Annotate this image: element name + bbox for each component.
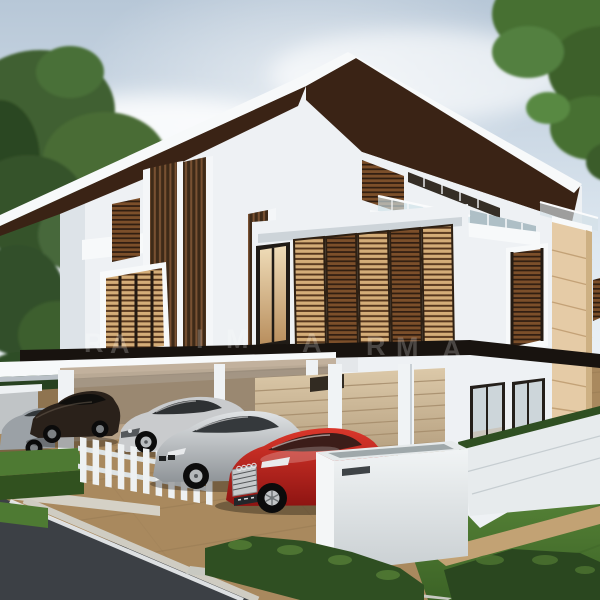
right-louver-window bbox=[512, 249, 542, 347]
watermark-letter: R bbox=[84, 328, 106, 358]
watermark-letter: A bbox=[442, 334, 464, 364]
watermark-letter: A bbox=[110, 329, 132, 359]
watermark-letter: I bbox=[196, 324, 206, 354]
watermark-letter: A bbox=[302, 328, 324, 358]
architectural-render: R A I M A R M A bbox=[0, 0, 600, 600]
hedge-planter-1 bbox=[0, 448, 84, 500]
edge-louver-sliver bbox=[593, 278, 600, 321]
render-canvas: R A I M A R M A bbox=[0, 0, 600, 600]
watermark-letter: M bbox=[226, 324, 251, 354]
small-louver-window bbox=[112, 198, 140, 262]
watermark-letter: R bbox=[366, 331, 388, 361]
watermark-letter: M bbox=[396, 332, 421, 362]
left-end-wall bbox=[60, 186, 85, 372]
